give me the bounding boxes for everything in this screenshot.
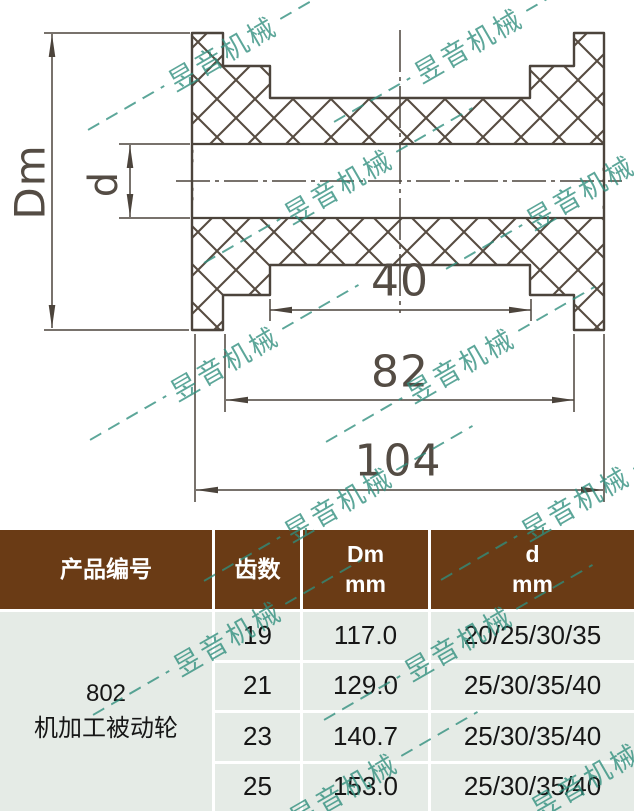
dim-label-104: 104 bbox=[355, 436, 442, 487]
table-cell-d: 25/30/35/40 bbox=[428, 660, 634, 711]
product-code: 802 bbox=[86, 677, 126, 712]
header-dm: Dm mm bbox=[300, 530, 428, 609]
dim-label-40: 40 bbox=[371, 256, 429, 307]
table-cell-d: 20/25/30/35 bbox=[428, 609, 634, 660]
technical-drawing: Dm d 40 82 bbox=[0, 0, 634, 530]
spec-table: 产品编号 齿数 Dm mm d mm 802 机加工被动轮 19 117.0 2… bbox=[0, 530, 634, 811]
product-spec-sheet: Dm d 40 82 bbox=[0, 0, 634, 811]
header-dm-line1: Dm bbox=[347, 540, 384, 570]
table-cell-teeth: 19 bbox=[212, 609, 300, 660]
table-cell-teeth: 23 bbox=[212, 710, 300, 761]
header-dm-line2: mm bbox=[345, 570, 386, 600]
table-cell-dm: 153.0 bbox=[300, 761, 428, 811]
product-cell: 802 机加工被动轮 bbox=[0, 609, 212, 811]
header-product-code: 产品编号 bbox=[0, 530, 212, 609]
header-d: d mm bbox=[428, 530, 634, 609]
header-d-line1: d bbox=[525, 540, 539, 570]
table-cell-d: 25/30/35/40 bbox=[428, 761, 634, 811]
table-cell-teeth: 21 bbox=[212, 660, 300, 711]
table-cell-d: 25/30/35/40 bbox=[428, 710, 634, 761]
table-cell-dm: 129.0 bbox=[300, 660, 428, 711]
pulley-cross-section-svg: Dm d 40 82 bbox=[0, 0, 634, 530]
table-cell-dm: 140.7 bbox=[300, 710, 428, 761]
dim-label-dm: Dm bbox=[6, 144, 55, 219]
dim-label-82: 82 bbox=[371, 347, 429, 398]
table-cell-teeth: 25 bbox=[212, 761, 300, 811]
header-teeth-count-label: 齿数 bbox=[235, 555, 281, 585]
dim-label-d: d bbox=[81, 171, 127, 197]
header-teeth-count: 齿数 bbox=[212, 530, 300, 609]
header-product-code-label: 产品编号 bbox=[60, 555, 152, 585]
product-name: 机加工被动轮 bbox=[34, 712, 178, 747]
table-cell-dm: 117.0 bbox=[300, 609, 428, 660]
header-d-line2: mm bbox=[512, 570, 553, 600]
